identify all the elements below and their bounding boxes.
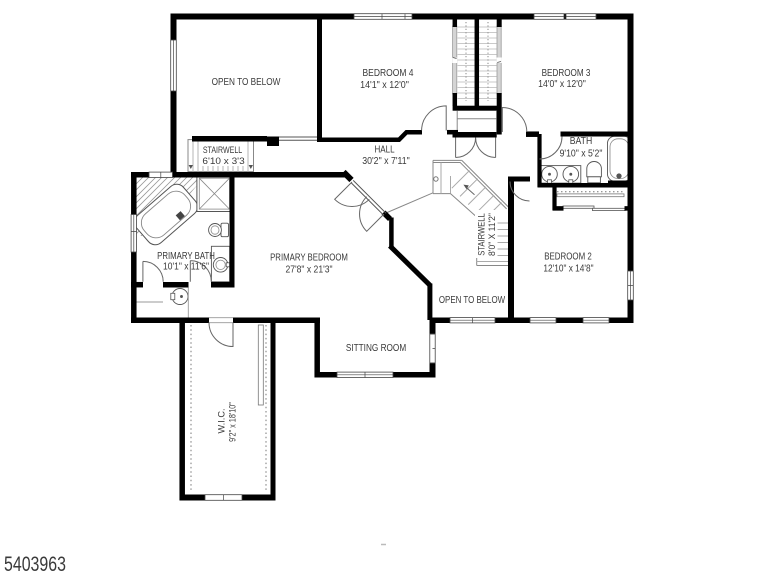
svg-text:BATH: BATH: [570, 135, 593, 146]
svg-text:OPEN TO BELOW: OPEN TO BELOW: [212, 76, 281, 87]
svg-text:STAIRWELL: STAIRWELL: [203, 145, 243, 155]
svg-text:10'1" x 11'6": 10'1" x 11'6": [163, 261, 209, 272]
svg-text:12'10" x 14'8": 12'10" x 14'8": [543, 263, 593, 274]
svg-text:W.I.C.: W.I.C.: [216, 408, 226, 433]
svg-text:27'8" x 21'3": 27'8" x 21'3": [285, 264, 332, 275]
svg-text:9'10" x 5'2": 9'10" x 5'2": [560, 148, 603, 159]
svg-text:30'2" x 7'11": 30'2" x 7'11": [362, 155, 410, 167]
svg-text:STAIRWELL: STAIRWELL: [476, 213, 487, 256]
svg-text:14'1" x 12'0": 14'1" x 12'0": [360, 80, 409, 92]
svg-text:BEDROOM 3: BEDROOM 3: [542, 67, 591, 78]
svg-text:HALL: HALL: [374, 144, 394, 155]
svg-text:14'0" x 12'0": 14'0" x 12'0": [538, 78, 586, 89]
svg-text:BEDROOM 4: BEDROOM 4: [363, 67, 414, 79]
svg-text:SITTING ROOM: SITTING ROOM: [346, 342, 406, 353]
svg-text:5403963: 5403963: [4, 553, 66, 576]
svg-text:8'0" X 11'2": 8'0" X 11'2": [487, 213, 497, 256]
svg-text:OPEN TO BELOW: OPEN TO BELOW: [439, 294, 506, 305]
svg-text:9'2" x 18'10": 9'2" x 18'10": [227, 402, 238, 442]
svg-text:6'10 x 3'3: 6'10 x 3'3: [202, 156, 244, 167]
svg-text:BEDROOM 2: BEDROOM 2: [544, 250, 592, 261]
svg-text:PRIMARY BEDROOM: PRIMARY BEDROOM: [270, 251, 348, 262]
svg-text:PRIMARY BATH: PRIMARY BATH: [157, 250, 215, 261]
